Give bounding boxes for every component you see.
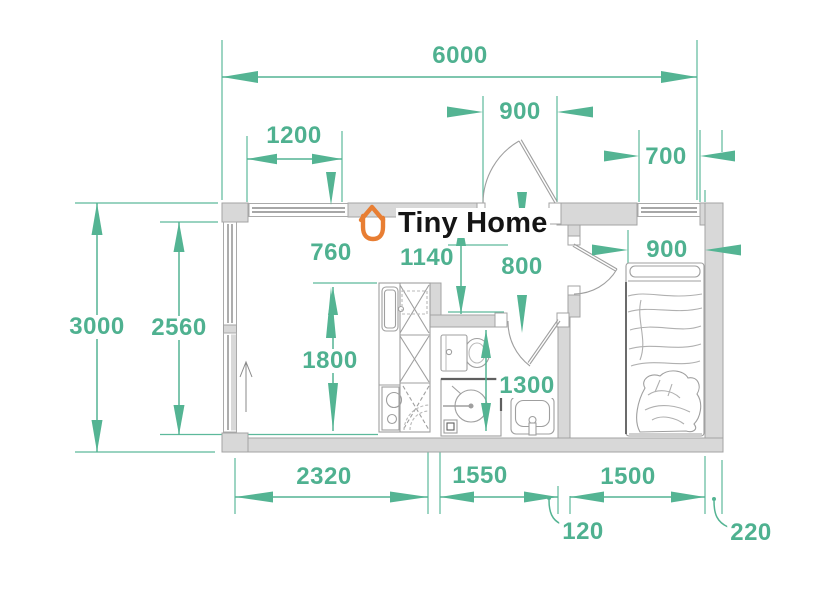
wall-corner-top-left — [222, 203, 248, 222]
dimension-label-hall-width: 800 — [498, 255, 546, 279]
wall-corner-bottom-left — [222, 433, 248, 452]
dimension-label-bed-width: 900 — [643, 238, 691, 262]
left-wall-window-lower — [224, 333, 237, 432]
dimension-label-interior-depth: 2560 — [148, 316, 209, 340]
living-room-window — [249, 204, 348, 217]
left-wall-window-upper — [224, 222, 237, 325]
partition-bathroom-bedroom — [558, 317, 570, 438]
dimension-label-hall-depth: 1140 — [397, 246, 457, 270]
bathroom-door — [508, 320, 560, 366]
bathroom-sink — [511, 397, 554, 435]
bed-duvet — [637, 371, 701, 432]
wall-bathroom-top — [429, 315, 496, 327]
left-wall-mullion — [224, 325, 237, 333]
dimension-label-bedroom-window-width: 700 — [642, 145, 690, 169]
wall-right — [705, 203, 723, 452]
dimension-label-entry-door-width: 900 — [496, 100, 544, 124]
floor-plan-canvas: Tiny Home 600012009007007601140800900300… — [0, 0, 836, 591]
floor-plan-drawing — [0, 0, 836, 591]
bedroom-window — [638, 204, 700, 217]
dimension-label-bathroom-depth: 1300 — [496, 374, 557, 398]
dimension-label-kitchen-run-length: 1800 — [299, 349, 360, 373]
dimension-label-overall-depth: 3000 — [66, 315, 127, 339]
shower — [441, 379, 501, 436]
bed — [626, 263, 704, 436]
dimension-label-bathroom-width: 1550 — [449, 464, 510, 488]
stub-bedroom-door-bottom — [568, 294, 580, 317]
dimension-label-partition-thickness: 120 — [559, 520, 607, 544]
dimension-label-bedroom-width: 1500 — [597, 465, 658, 489]
kitchen-unit — [379, 283, 430, 432]
north-arrow — [240, 362, 252, 412]
dimension-label-passage-width: 760 — [307, 241, 355, 265]
wall-bottom — [222, 438, 723, 452]
dimension-label-overall-width: 6000 — [429, 44, 490, 68]
wall-top-entry-right — [557, 203, 637, 225]
dimension-label-living-window-width: 1200 — [263, 124, 324, 148]
dimension-label-wall-thickness: 220 — [727, 521, 775, 545]
dimension-label-living-room-width: 2320 — [293, 465, 354, 489]
tiny-home-logo-icon — [352, 199, 396, 247]
brand-title: Tiny Home — [396, 208, 550, 238]
